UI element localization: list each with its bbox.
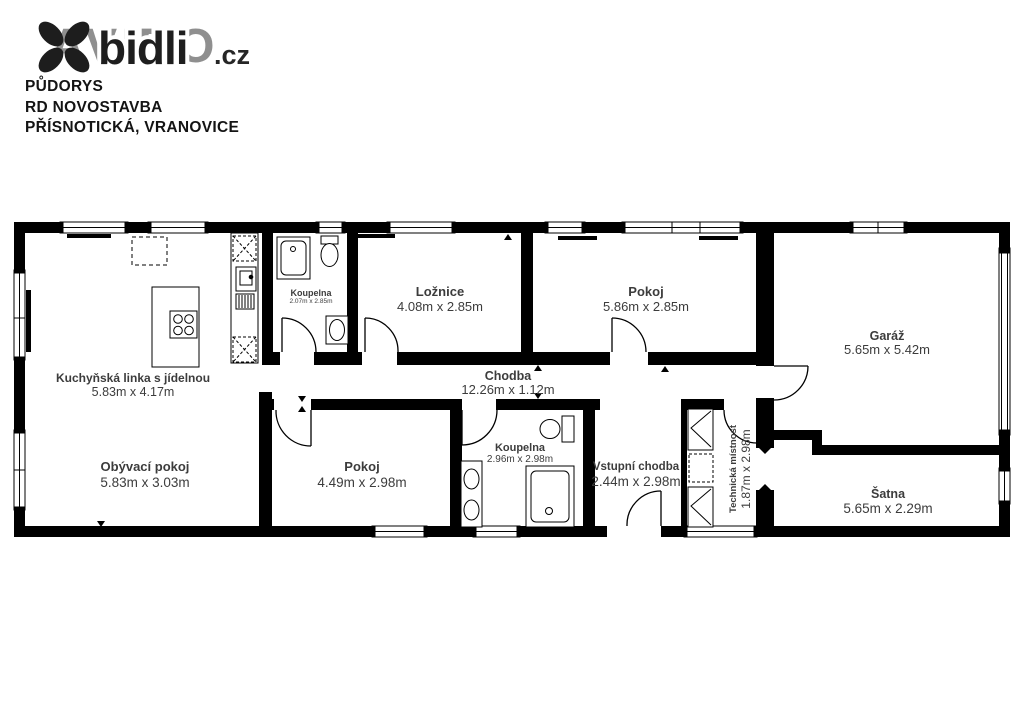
title-line-3: PŘÍSNOTICKÁ, VRANOVICE: [25, 118, 239, 139]
window: [148, 222, 208, 233]
title-line-1: PŮDORYS: [25, 77, 239, 98]
logo-tld-text: .cz: [214, 40, 250, 70]
room-label-technical-room: Technická místnost 1.87m x 2.98m: [729, 425, 753, 513]
window-bars: [67, 234, 738, 240]
room-name: Ložnice: [397, 285, 483, 300]
room-name: Obývací pokoj: [100, 460, 189, 475]
room-dims: 2.44m x 2.98m: [591, 474, 680, 489]
room-name: Chodba: [461, 369, 554, 383]
kitchen-sink: [236, 267, 256, 291]
entrance-door-opening: [607, 526, 661, 537]
window: [999, 468, 1010, 504]
room-dims: 4.08m x 2.85m: [397, 300, 483, 315]
shower: [526, 466, 574, 527]
room-dims: 5.83m x 3.03m: [100, 475, 189, 490]
window: [684, 526, 757, 537]
garage-door: [999, 248, 1010, 435]
room-label-garage: Garáž 5.65m x 5.42m: [844, 329, 930, 358]
bedroom-door: [365, 318, 398, 352]
garage-inner-door: [774, 366, 808, 400]
room-name: Kuchyňská linka s jídelnou: [56, 372, 210, 385]
dashed-unit: [689, 454, 713, 482]
bathroom2-door: [462, 410, 497, 445]
window: [316, 222, 345, 233]
stove: [170, 311, 197, 338]
room-dims: 5.65m x 5.42m: [844, 343, 930, 358]
shower: [277, 237, 310, 279]
sliding-panel: [26, 290, 31, 352]
kitchen-cabinet: [233, 236, 256, 261]
window: [545, 222, 585, 233]
room-name: Koupelna: [290, 288, 333, 298]
sink: [326, 316, 348, 344]
room-label-entry-hall: Vstupní chodba 2.44m x 2.98m: [591, 461, 680, 489]
room-dims: 5.65m x 2.29m: [843, 501, 932, 516]
entrance-door: [627, 491, 661, 526]
room-dims: 1.87m x 2.98m: [740, 425, 753, 513]
double-sink: [461, 461, 482, 527]
room-label-hallway: Chodba 12.26m x 1.12m: [461, 369, 554, 398]
room-name: Vstupní chodba: [591, 461, 680, 474]
room-label-kitchen: Kuchyňská linka s jídelnou 5.83m x 4.17m: [56, 372, 210, 399]
bathroom1-door: [282, 318, 316, 352]
room-name: Šatna: [843, 487, 932, 501]
room-dims: 2.07m x 2.85m: [290, 298, 333, 305]
title-line-2: RD NOVOSTAVBA: [25, 98, 239, 119]
window: [14, 430, 25, 510]
room-label-room2: Pokoj 4.49m x 2.98m: [317, 460, 406, 490]
toilet: [540, 416, 574, 442]
plan-title: PŮDORYS RD NOVOSTAVBA PŘÍSNOTICKÁ, VRANO…: [25, 77, 239, 139]
room-name: Garáž: [844, 329, 930, 343]
room-name: Pokoj: [317, 460, 406, 475]
logo-brand-text: bidli: [98, 22, 188, 74]
kitchen-cabinet: [233, 337, 256, 362]
room-name: Koupelna: [487, 442, 553, 454]
bidli-logo: AVIDO bidli .cz: [14, 6, 304, 80]
room-dims: 5.86m x 2.85m: [603, 300, 689, 315]
room-label-bedroom: Ložnice 4.08m x 2.85m: [397, 285, 483, 314]
room-dims: 4.49m x 2.98m: [317, 475, 406, 490]
room-label-room1: Pokoj 5.86m x 2.85m: [603, 285, 689, 314]
room1-door: [612, 318, 646, 352]
kitchen-drainer: [236, 294, 254, 309]
window: [850, 222, 907, 233]
room-label-living-room: Obývací pokoj 5.83m x 3.03m: [100, 460, 189, 490]
room-dims: 2.96m x 2.98m: [487, 454, 553, 465]
floorplan-page: AVIDO bidli .cz PŮDORYS RD NOVOSTAVBA PŘ…: [0, 0, 1024, 724]
window: [622, 222, 743, 233]
kitchen-fixtures: [26, 233, 258, 367]
technical-room-fixtures: [688, 409, 713, 527]
room-name: Pokoj: [603, 285, 689, 300]
room-label-bathroom1: Koupelna 2.07m x 2.85m: [290, 288, 333, 305]
room-dims: 5.83m x 4.17m: [56, 385, 210, 399]
window: [60, 222, 128, 233]
room-dims: 12.26m x 1.12m: [461, 383, 554, 398]
room2-door: [276, 410, 311, 446]
room-label-bathroom2: Koupelna 2.96m x 2.98m: [487, 442, 553, 466]
window: [14, 270, 25, 360]
skylight-dashed-box: [132, 237, 167, 265]
toilet: [321, 236, 338, 267]
window: [372, 526, 427, 537]
bathroom2-fixtures: [461, 416, 574, 527]
wardrobe: [688, 409, 713, 450]
window: [473, 526, 520, 537]
window: [387, 222, 455, 233]
room-label-closet: Šatna 5.65m x 2.29m: [843, 487, 932, 516]
wardrobe: [688, 487, 713, 527]
